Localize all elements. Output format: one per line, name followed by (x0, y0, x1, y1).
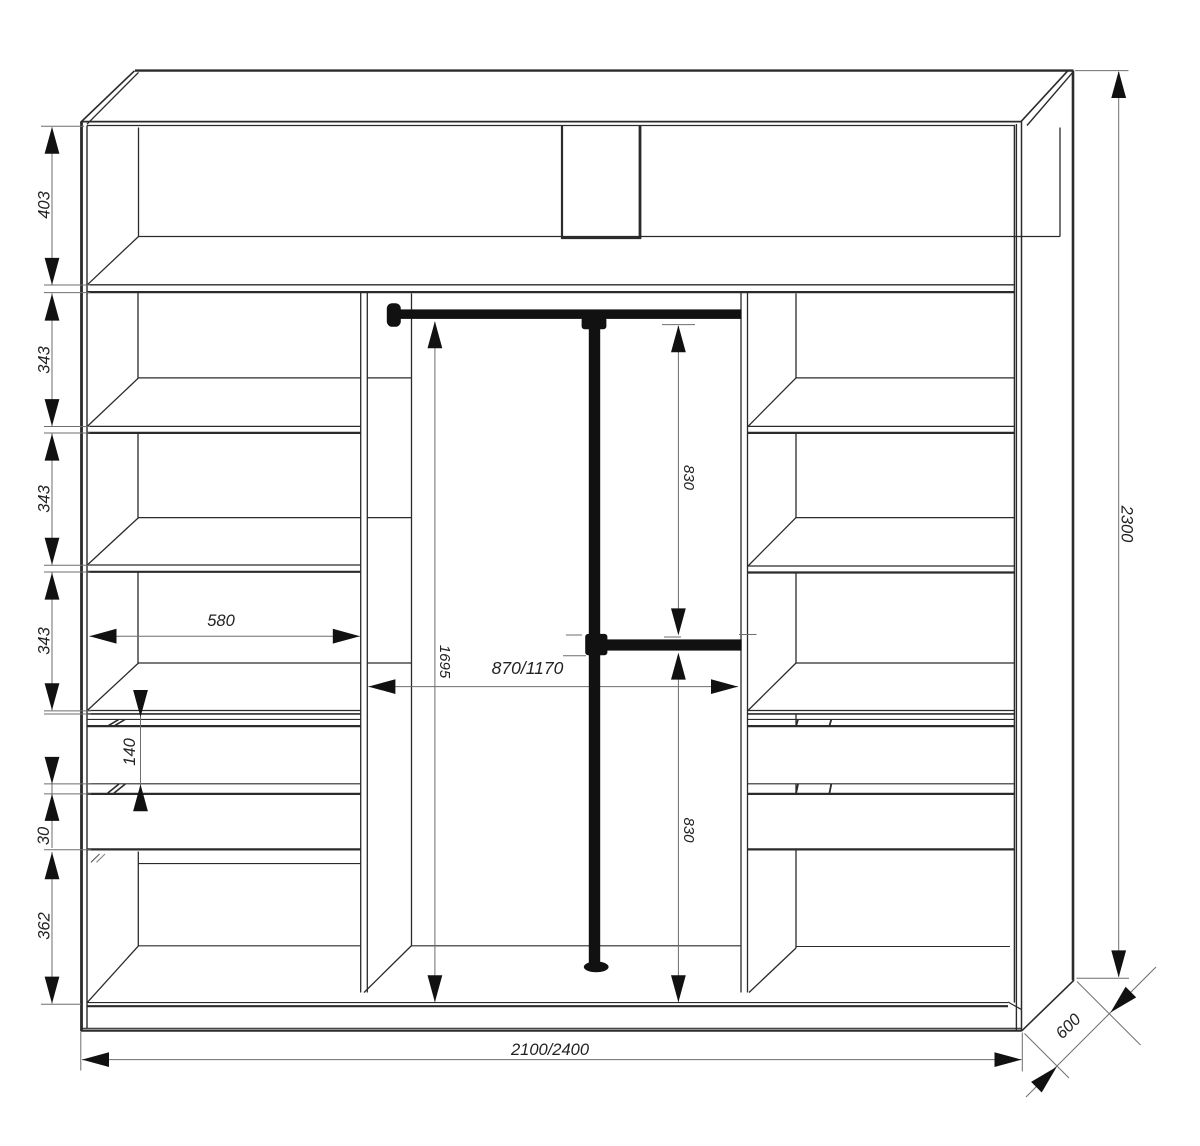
svg-text:580: 580 (207, 612, 235, 630)
svg-text:403: 403 (36, 190, 54, 218)
svg-text:140: 140 (121, 737, 139, 765)
svg-text:2300: 2300 (1118, 505, 1136, 544)
svg-text:1695: 1695 (436, 645, 453, 679)
svg-text:830: 830 (680, 817, 697, 843)
svg-text:362: 362 (36, 912, 54, 940)
svg-text:30: 30 (35, 826, 53, 845)
svg-text:343: 343 (36, 626, 54, 654)
svg-text:343: 343 (36, 345, 54, 373)
svg-text:830: 830 (680, 465, 697, 491)
svg-text:870/1170: 870/1170 (492, 658, 564, 678)
svg-text:2100/2400: 2100/2400 (510, 1041, 590, 1059)
svg-text:343: 343 (36, 484, 54, 512)
